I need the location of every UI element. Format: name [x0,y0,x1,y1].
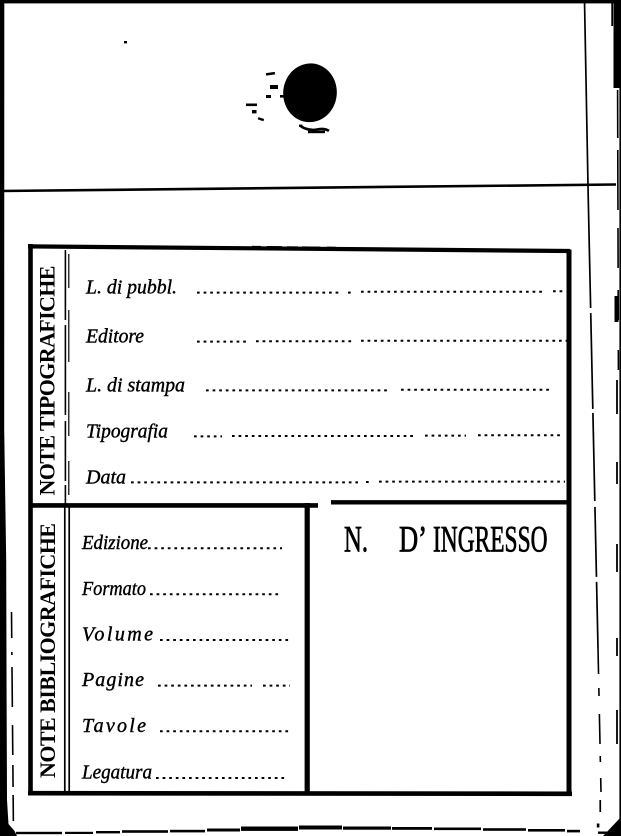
svg-text:INGRESSO: INGRESSO [433,520,548,561]
svg-text:NOTE TIPOGRAFICHE: NOTE TIPOGRAFICHE [35,266,60,496]
svg-text:L. di pubbl.: L. di pubbl. [85,277,177,299]
svg-text:Editore: Editore [85,326,144,348]
svg-text:N.: N. [344,520,368,561]
svg-text:D’: D’ [399,520,427,561]
svg-text:Pagine: Pagine [81,669,144,691]
svg-text:Data: Data [85,467,126,489]
svg-text:Edizione: Edizione [81,532,148,554]
svg-text:NOTE BIBLIOGRAFICHE: NOTE BIBLIOGRAFICHE [35,523,60,778]
svg-text:L. di stampa: L. di stampa [85,375,185,397]
svg-text:Tipografia: Tipografia [86,421,168,443]
svg-text:Legatura: Legatura [81,762,152,784]
svg-text:Formato: Formato [81,578,146,600]
